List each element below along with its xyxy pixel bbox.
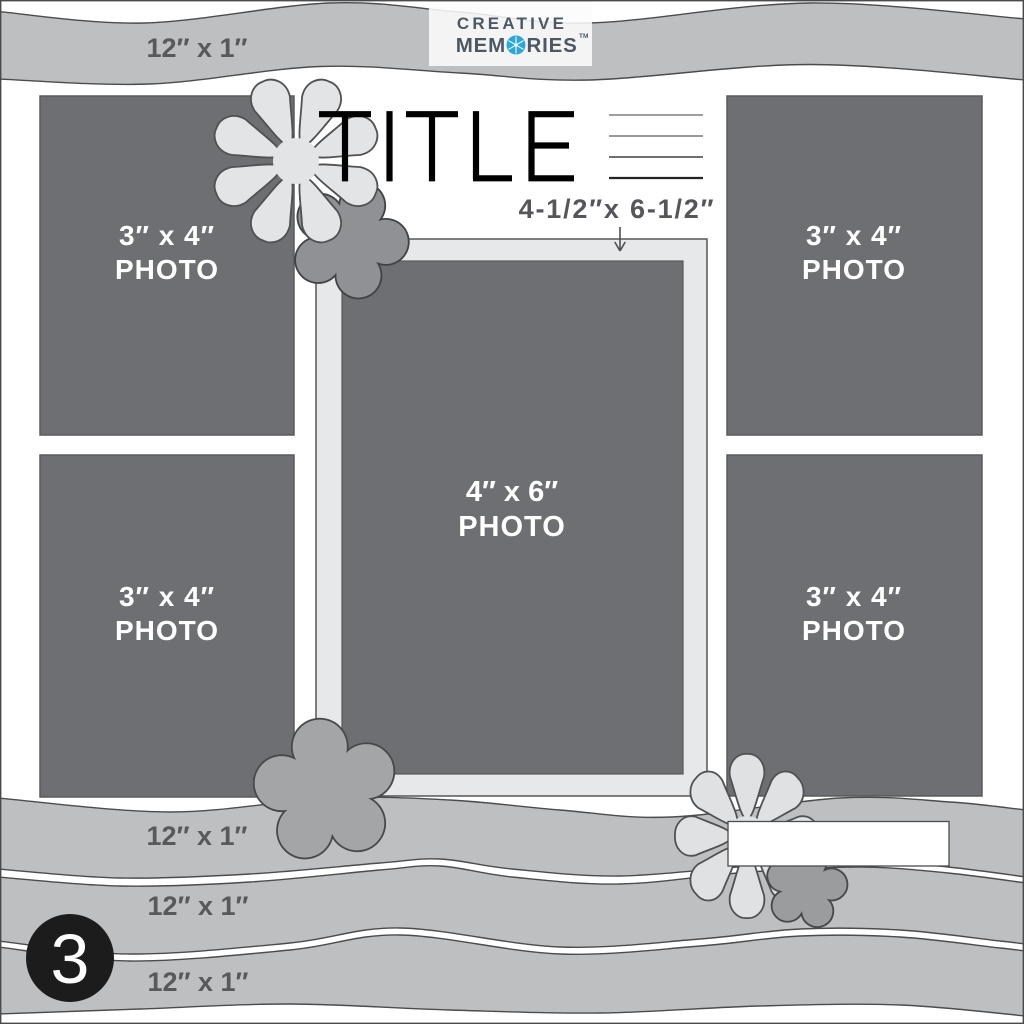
svg-text:3″ x 4″: 3″ x 4″ xyxy=(119,220,215,251)
svg-text:PHOTO: PHOTO xyxy=(115,615,219,646)
svg-text:12″ x 1″: 12″ x 1″ xyxy=(148,891,249,921)
svg-text:PHOTO: PHOTO xyxy=(802,615,906,646)
svg-text:PHOTO: PHOTO xyxy=(458,511,566,543)
svg-text:3″ x 4″: 3″ x 4″ xyxy=(119,581,215,612)
svg-text:12″ x 1″: 12″ x 1″ xyxy=(147,33,248,63)
svg-text:3: 3 xyxy=(51,920,90,998)
svg-text:4″ x 6″: 4″ x 6″ xyxy=(466,476,558,508)
svg-text:PHOTO: PHOTO xyxy=(115,254,219,285)
svg-text:PHOTO: PHOTO xyxy=(802,254,906,285)
svg-text:MEM: MEM xyxy=(456,34,506,57)
svg-text:3″ x 4″: 3″ x 4″ xyxy=(806,220,902,251)
svg-text:CREATIVE: CREATIVE xyxy=(457,14,567,33)
svg-text:3″ x 4″: 3″ x 4″ xyxy=(806,581,902,612)
svg-text:RIES: RIES xyxy=(527,34,578,57)
svg-text:12″ x 1″: 12″ x 1″ xyxy=(148,967,249,997)
svg-text:4-1/2″x 6-1/2″: 4-1/2″x 6-1/2″ xyxy=(519,194,716,224)
svg-text:TM: TM xyxy=(579,33,588,40)
svg-text:12″ x 1″: 12″ x 1″ xyxy=(147,821,248,851)
